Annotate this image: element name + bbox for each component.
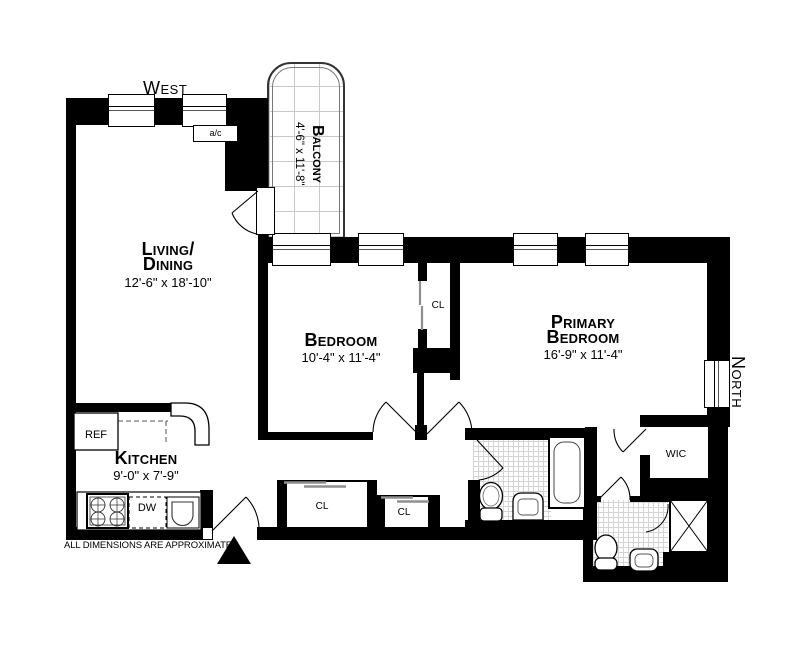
balcony-label: Balcony 4'-6" x 11'-8": [278, 88, 326, 220]
hall-closet-2-label: CL: [398, 507, 411, 518]
wall: [465, 428, 597, 440]
entry-door: [212, 497, 259, 531]
window: [272, 233, 331, 266]
refrigerator-label: REF: [85, 429, 107, 441]
primary-bedroom-label: Primary Bedroom: [547, 315, 620, 345]
wall: [417, 373, 424, 425]
balcony-door-jamb: [256, 187, 275, 235]
wall: [375, 496, 385, 527]
wall: [418, 263, 427, 281]
bathroom-floor: [473, 438, 551, 522]
bedroom-dimensions: 10'-4" x 11'-4": [302, 350, 381, 365]
wall: [468, 480, 480, 522]
wall: [257, 527, 587, 540]
floor-plan: a/c: [0, 0, 800, 651]
wall: [663, 552, 728, 568]
living-dining-dimensions: 12'-6" x 18'-10": [124, 275, 211, 290]
living-dining-label: Living/ Dining: [142, 242, 195, 272]
dimensions-disclaimer: ALL DIMENSIONS ARE APPROXIMATE: [64, 540, 232, 551]
bedroom-closet-label: CL: [432, 300, 445, 311]
bathtub: [549, 437, 585, 508]
entry-door-jamb: [202, 527, 213, 540]
wall: [593, 496, 601, 502]
wall: [268, 237, 730, 263]
window: [585, 233, 629, 266]
window: [182, 94, 227, 127]
bedroom-label: Bedroom: [305, 333, 378, 348]
wall: [66, 403, 173, 412]
second-bathroom-floor: [593, 500, 668, 568]
kitchen-label: Kitchen: [115, 451, 178, 466]
window: [358, 233, 404, 266]
wall: [428, 496, 440, 527]
kitchen-sink: [167, 497, 199, 528]
stove: [87, 494, 128, 528]
wall: [640, 478, 728, 502]
wall: [640, 415, 730, 427]
wall: [225, 98, 268, 191]
wall: [707, 237, 730, 363]
wall: [277, 481, 287, 527]
second-bathroom-door: [598, 477, 630, 500]
wall: [258, 432, 373, 440]
wall: [583, 566, 728, 582]
hall-closet-1-label: CL: [316, 501, 329, 512]
wall: [66, 98, 76, 540]
wall: [640, 455, 650, 480]
dishwasher-label: DW: [138, 502, 156, 514]
wall: [415, 425, 427, 440]
wic-door: [614, 429, 646, 452]
wic-label: WIC: [666, 448, 686, 460]
wall: [418, 329, 427, 350]
balcony-door: [232, 191, 258, 234]
kitchen-dimensions: 9'-0" x 7'-9": [113, 468, 179, 483]
ac-label: a/c: [209, 128, 221, 138]
wall: [277, 480, 377, 482]
primary-bedroom-dimensions: 16'-9" x 11'-4": [544, 347, 623, 362]
ac-unit: a/c: [193, 125, 238, 142]
window: [513, 233, 558, 266]
compass-west: West: [143, 78, 187, 99]
closet-sliding-doors: [284, 281, 429, 502]
wall: [66, 527, 213, 540]
wall: [630, 496, 645, 502]
bedroom-door: [373, 402, 416, 432]
wall: [450, 263, 460, 380]
wall: [258, 235, 268, 432]
compass-north: North: [727, 356, 748, 420]
